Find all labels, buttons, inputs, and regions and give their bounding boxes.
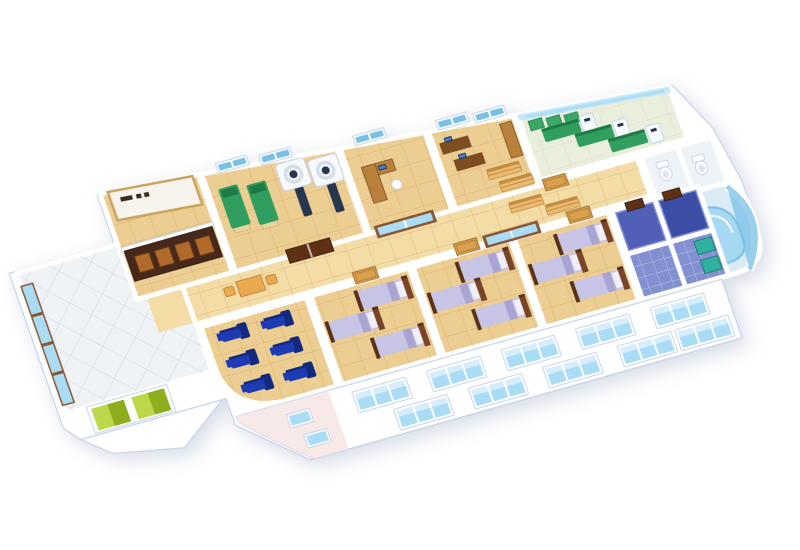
floor-plan-render <box>0 0 800 550</box>
canvas <box>0 0 800 550</box>
building <box>0 27 792 520</box>
